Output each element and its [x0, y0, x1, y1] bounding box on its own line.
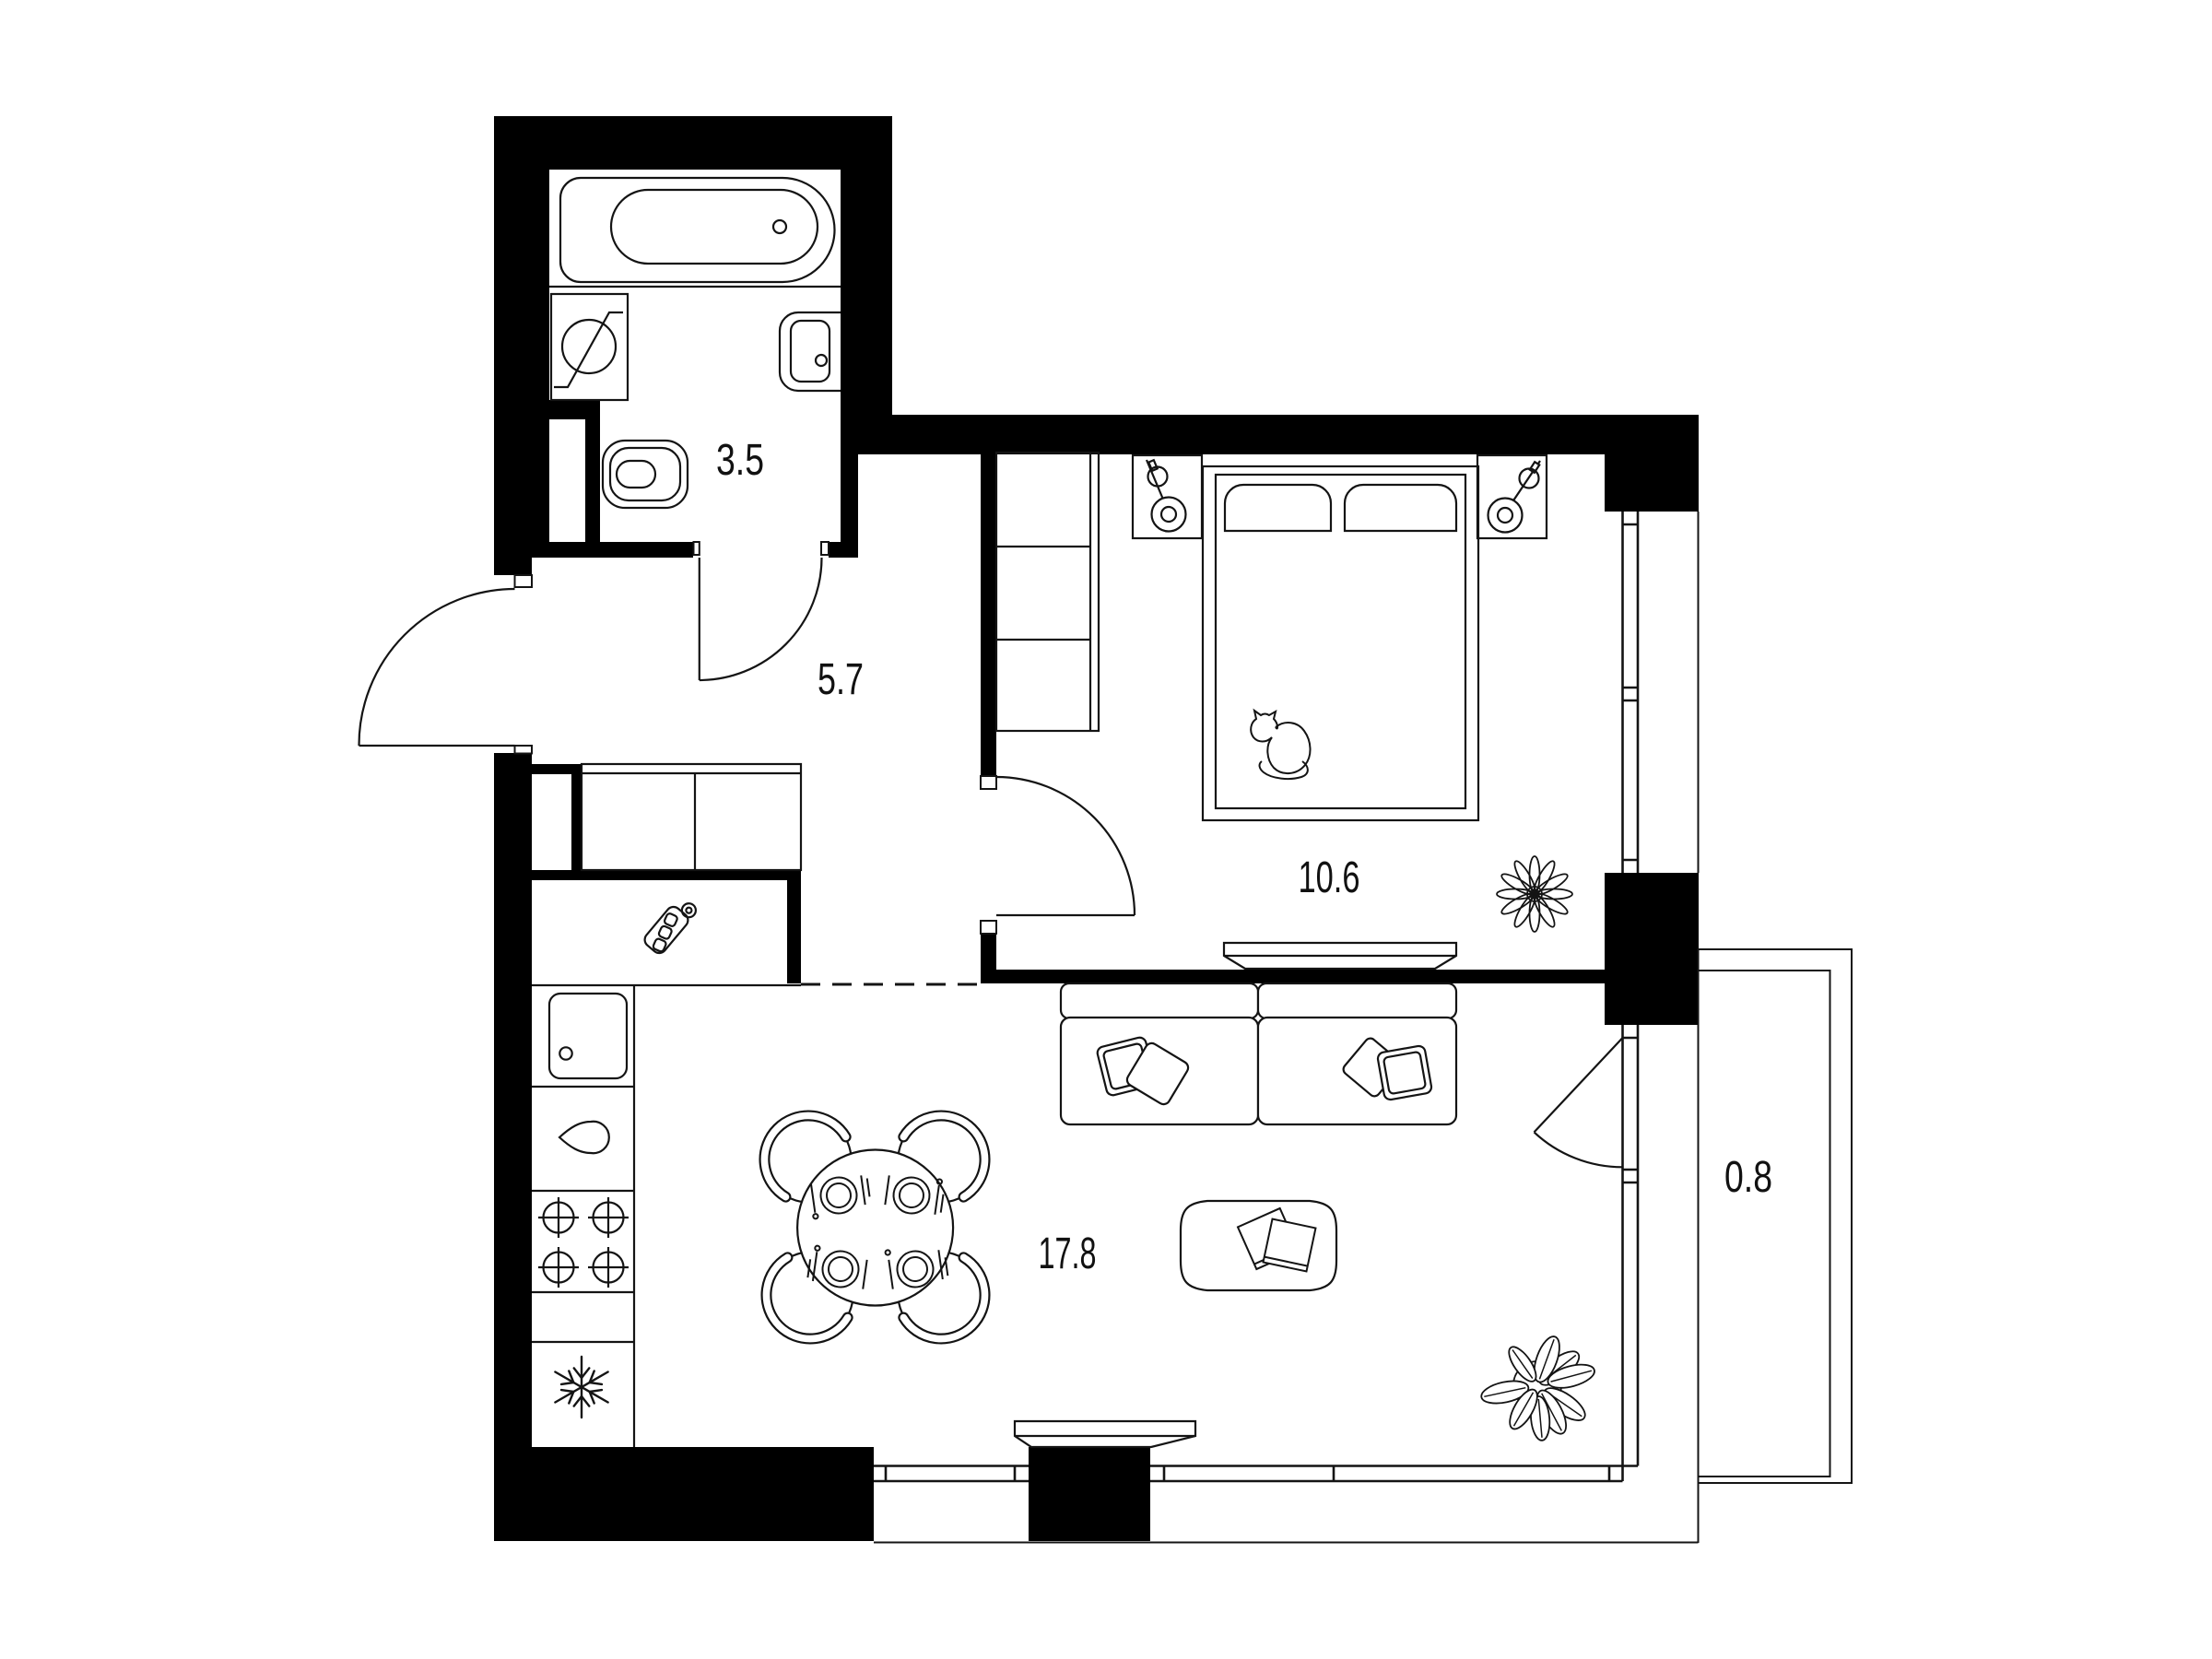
svg-text:17.8: 17.8: [1039, 1230, 1097, 1278]
svg-text:3.5: 3.5: [716, 436, 764, 485]
svg-text:0.8: 0.8: [1724, 1153, 1772, 1202]
svg-text:10.6: 10.6: [1299, 853, 1360, 902]
svg-text:5.7: 5.7: [818, 655, 864, 704]
